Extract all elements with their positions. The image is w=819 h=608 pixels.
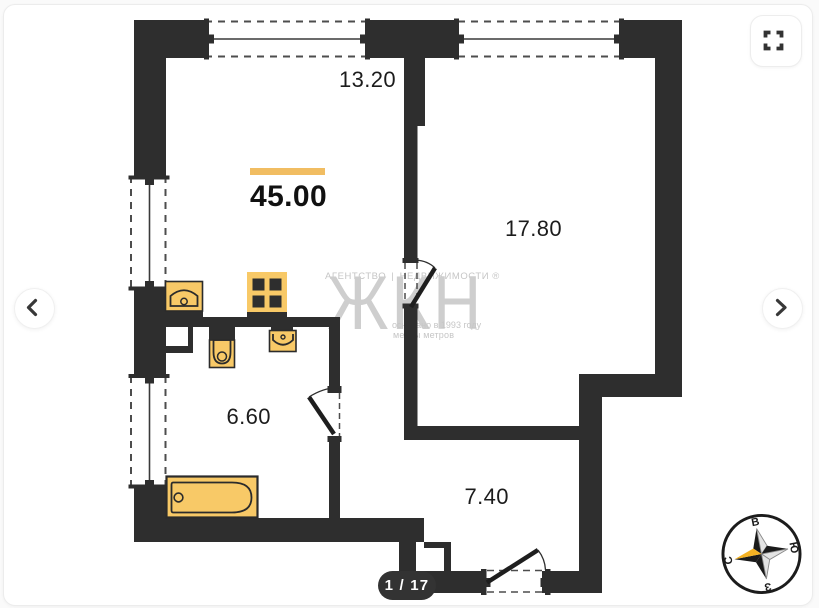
svg-text:Ю: Ю: [786, 541, 800, 554]
